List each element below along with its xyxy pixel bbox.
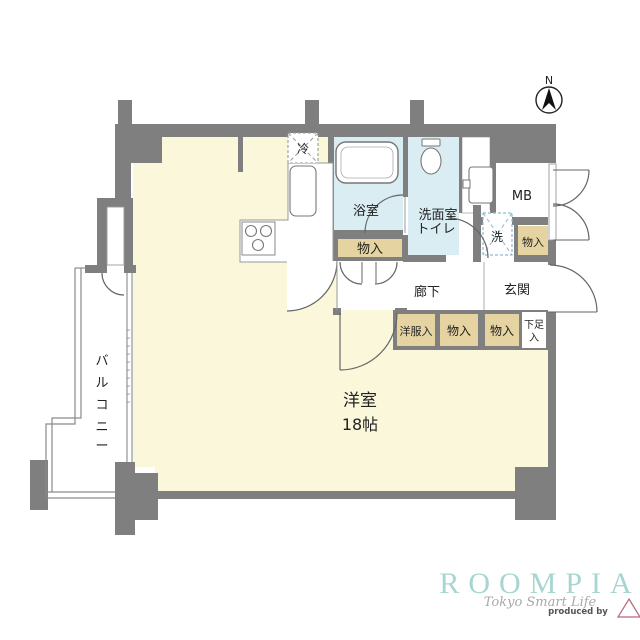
wall-corner-topleft [115, 124, 162, 163]
wall-pillar-bottomleft-a [115, 462, 135, 535]
wall-right-mid [548, 240, 556, 265]
bathtub [336, 142, 398, 183]
label-entrance: 玄関 [504, 283, 530, 298]
balcony-rail-inner [52, 268, 81, 492]
floor-plan-drawing: N 浴室 洗面室 トイレ MB 洗 物入 物入 廊下 玄関 洋服入 物入 物入 … [0, 0, 640, 640]
wall-pillar-top-2 [305, 100, 319, 124]
label-closet-bath-side: 物入 [357, 242, 383, 257]
toilet-cistern [422, 139, 440, 146]
wall-pillar-top-3 [410, 100, 424, 124]
wall-pillar-bottomleft-b [135, 473, 158, 520]
balcony-char-4: ニ [95, 420, 108, 435]
wall-top-over-mb [490, 124, 556, 163]
vanity-handle [463, 180, 470, 188]
producer-logo-icon [618, 599, 640, 617]
balcony-rail-outer [46, 268, 75, 498]
wall-left-lower [97, 207, 107, 273]
wall-left-inner-strip [124, 207, 133, 273]
label-refrigerator: 冷 [297, 142, 309, 156]
balcony-window [127, 273, 132, 462]
door-arc-mb-upper [553, 170, 589, 206]
wall-left-jog [97, 198, 133, 207]
stove-burner-3 [253, 240, 264, 251]
label-bathroom: 浴室 [353, 203, 379, 219]
wall-bottom [155, 491, 518, 499]
kitchen-sink [290, 166, 316, 216]
label-closet-clothes: 洋服入 [400, 324, 433, 338]
living-floor-mid2 [133, 310, 393, 350]
wall-top [115, 124, 556, 137]
label-washroom-1: 洗面室 [418, 207, 457, 223]
wall-balcony-stub-left [85, 265, 107, 273]
label-meter-box: MB [512, 189, 532, 204]
wall-kitchen-stub [238, 137, 243, 172]
label-living-room: 洋室 [343, 391, 377, 411]
wall-closet-right-left-border [514, 225, 518, 258]
living-floor-upper [133, 220, 240, 262]
label-living-size: 18帖 [342, 415, 378, 434]
wall-washroom-bottom [408, 255, 446, 262]
living-floor-bottom [155, 467, 515, 491]
bathroom-fixtures [336, 142, 398, 183]
label-washer: 洗 [491, 230, 503, 244]
balcony-char-2: ル [95, 376, 108, 391]
balcony-char-5: ー [95, 439, 108, 454]
door-arc-balcony [102, 273, 124, 295]
wall-balcony-stub-right [124, 265, 136, 273]
wall-outer-stub-bottomleft [30, 460, 48, 510]
mb-door-panels [549, 164, 556, 240]
label-shoe-closet-2: 入 [529, 333, 539, 344]
wall-left-upper [115, 163, 131, 200]
label-corridor: 廊下 [414, 284, 440, 300]
wall-nook-divider [459, 137, 462, 213]
label-closet-hall-2: 物入 [490, 324, 514, 338]
left-door-bay [107, 207, 124, 265]
wall-right-lower [548, 312, 556, 470]
stove-burner-2 [261, 226, 272, 237]
label-washroom-2: トイレ [416, 222, 455, 237]
door-arc-mb-lower [553, 204, 589, 240]
kitchen-floor-left [133, 163, 288, 220]
wall-pillar-top-1 [118, 100, 132, 124]
label-closet-hall-1: 物入 [447, 324, 471, 338]
wall-pillar-bottomright [515, 467, 556, 520]
wall-bathroom-washroom [403, 124, 408, 197]
label-balcony: バ ル コ ニ ー [95, 354, 108, 454]
label-closet-washer-side: 物入 [522, 235, 544, 249]
toilet-bowl [421, 148, 441, 174]
label-shoe-closet-1: 下足 [524, 319, 544, 331]
stove-burner-1 [246, 226, 257, 237]
branding: ROOMPIA Tokyo Smart Life produced by [439, 567, 640, 617]
door-arc-entrance [550, 265, 597, 312]
floor-plan-page: N 浴室 洗面室 トイレ MB 洗 物入 物入 廊下 玄関 洋服入 物入 物入 … [0, 0, 640, 640]
north-compass-icon: N [536, 74, 562, 113]
balcony-char-3: コ [95, 398, 108, 413]
compass-north-label: N [545, 74, 553, 87]
wall-right-top [548, 124, 556, 163]
compass-needle [542, 88, 556, 110]
vanity-unit [469, 167, 493, 203]
produced-by-label: produced by [548, 607, 608, 617]
balcony-char-1: バ [95, 354, 108, 369]
